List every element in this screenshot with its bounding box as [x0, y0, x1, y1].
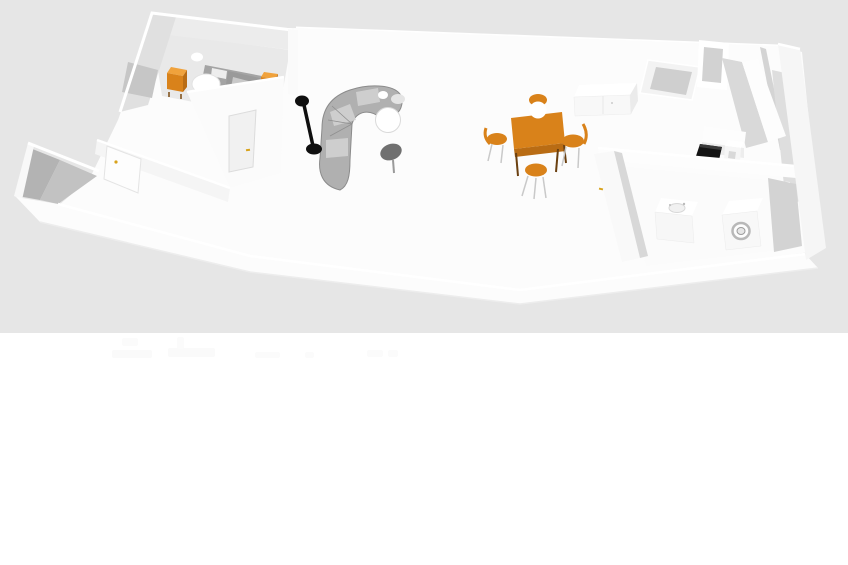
bathroom-2: [594, 148, 802, 266]
page-background: [0, 333, 848, 565]
sideboard[interactable]: [574, 83, 638, 116]
pendant-lamp[interactable]: [530, 102, 547, 119]
round-ottoman[interactable]: [376, 108, 401, 133]
render-canvas[interactable]: [0, 0, 848, 565]
washbasin-cabinet[interactable]: [655, 198, 698, 243]
bathroom-1-door[interactable]: [229, 110, 256, 172]
floorplan-3d-viewport[interactable]: [0, 0, 848, 565]
ceiling-lamp[interactable]: [191, 53, 203, 62]
open-door-tilted[interactable]: [640, 60, 700, 100]
washing-machine[interactable]: [722, 198, 763, 250]
door-handle: [114, 160, 117, 163]
